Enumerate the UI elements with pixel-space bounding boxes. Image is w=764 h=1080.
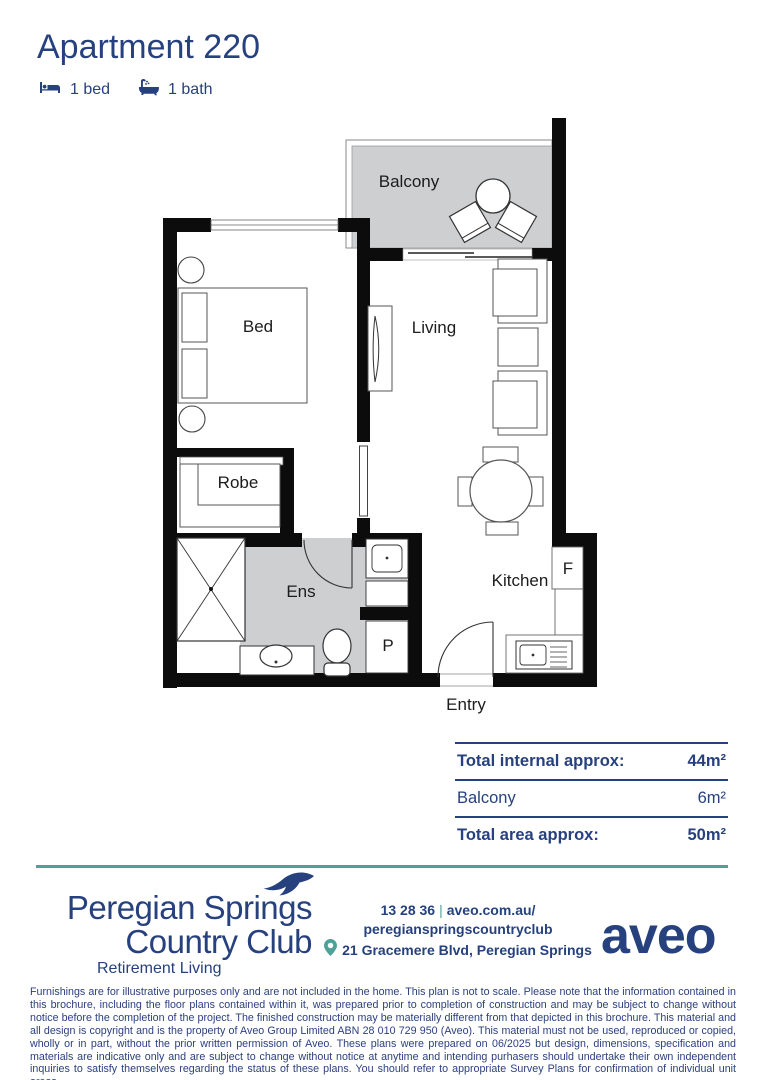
address-text: 21 Gracemere Blvd, Peregian Springs <box>342 941 592 960</box>
area-label: Total internal approx: <box>457 752 624 771</box>
brand-tagline: Retirement Living <box>97 960 222 978</box>
entry-threshold <box>440 674 493 686</box>
phone-number: 13 28 36 <box>381 902 436 918</box>
brand-name-line1: Peregian Springs <box>38 889 312 927</box>
area-value: 6m² <box>698 789 726 808</box>
label-ens: Ens <box>286 582 315 601</box>
toilet <box>323 629 351 676</box>
vanity-basin <box>240 645 314 675</box>
disclaimer-text: Furnishings are for illustrative purpose… <box>30 986 736 1080</box>
label-pantry: P <box>382 636 393 655</box>
entry-door <box>438 622 493 677</box>
label-fridge: F <box>563 559 573 578</box>
area-value: 44m² <box>687 752 726 771</box>
table-row: Balcony 6m² <box>455 779 728 816</box>
sliding-door-balcony <box>403 249 532 260</box>
contact-line2: peregianspringscountryclub <box>322 920 594 939</box>
linen-cupboard <box>366 581 408 606</box>
label-kitchen: Kitchen <box>492 571 549 590</box>
area-label: Total area approx: <box>457 826 599 845</box>
contact-address-row: 21 Gracemere Blvd, Peregian Springs <box>324 939 592 961</box>
table-row: Total internal approx: 44m² <box>455 742 728 779</box>
label-living: Living <box>412 318 456 337</box>
contact-line1: 13 28 36|aveo.com.au/ <box>322 901 594 920</box>
label-balcony: Balcony <box>379 172 440 191</box>
floorplan: Balcony Bed Living Robe Ens Kitchen F P … <box>0 0 764 740</box>
label-robe: Robe <box>218 473 259 492</box>
armchairs <box>493 259 547 435</box>
kitchen-sink <box>516 641 572 669</box>
dining-set <box>458 447 543 535</box>
website-url: aveo.com.au/ <box>447 902 536 918</box>
sliding-door-bedroom <box>360 446 368 516</box>
area-value: 50m² <box>687 826 726 845</box>
separator: | <box>435 902 447 918</box>
window-bedroom <box>211 220 338 230</box>
laundry-tub <box>366 539 408 578</box>
contact-block: 13 28 36|aveo.com.au/ peregianspringscou… <box>322 901 594 961</box>
area-label: Balcony <box>457 789 516 808</box>
brand-name-line2: Country Club <box>38 923 312 961</box>
tv-unit <box>368 306 392 391</box>
shower <box>177 538 245 641</box>
map-pin-icon <box>324 939 337 961</box>
aveo-logo: aveo <box>601 906 716 966</box>
table-row: Total area approx: 50m² <box>455 816 728 853</box>
footer-divider <box>36 865 728 868</box>
bed-furniture <box>178 288 307 403</box>
label-bed: Bed <box>243 317 273 336</box>
areas-table: Total internal approx: 44m² Balcony 6m² … <box>455 742 728 853</box>
label-entry: Entry <box>446 695 486 714</box>
brochure-page: Apartment 220 1 bed 1 bath <box>0 0 764 1080</box>
